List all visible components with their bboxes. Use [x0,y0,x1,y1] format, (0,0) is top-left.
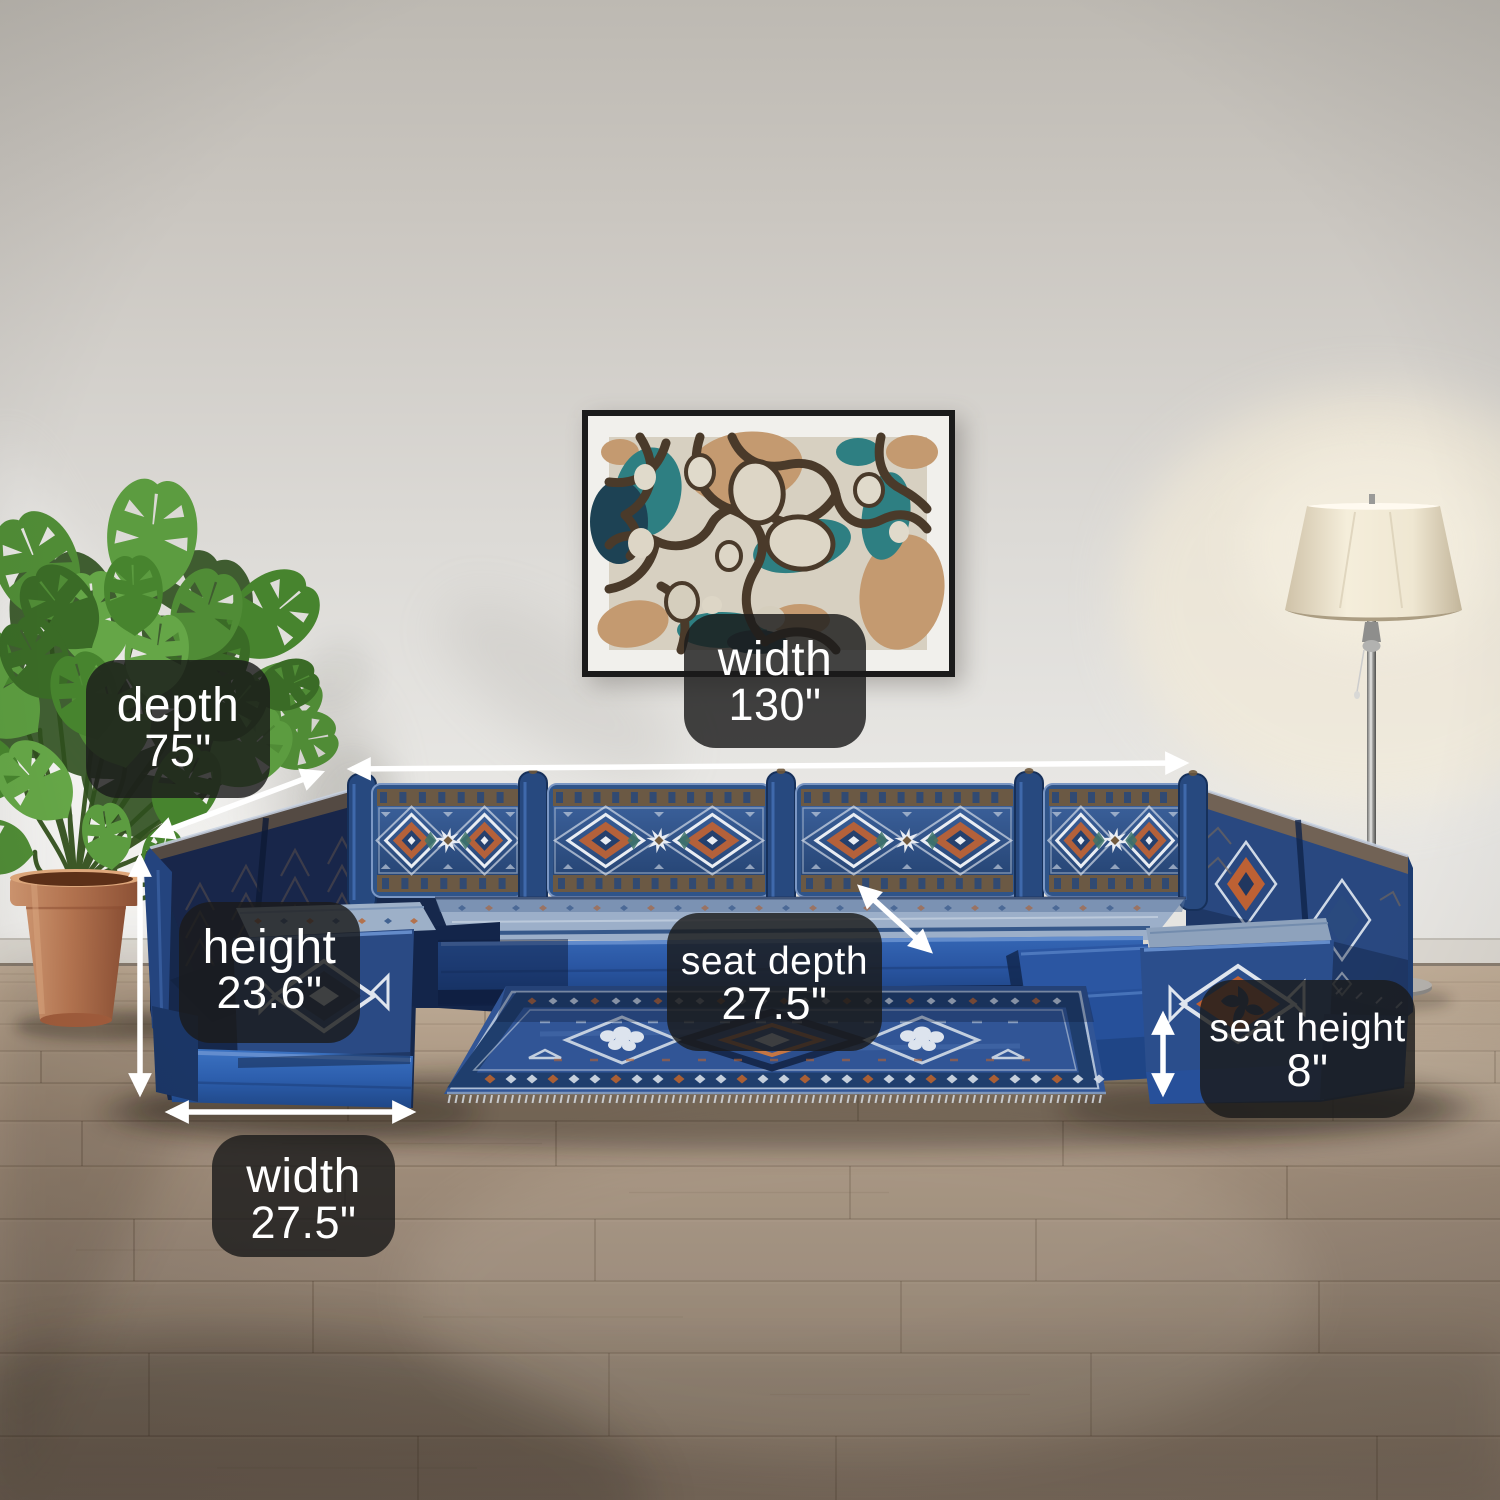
svg-text:seat height: seat height [1209,1007,1405,1050]
svg-text:8": 8" [1286,1045,1328,1096]
svg-text:23.6": 23.6" [216,967,322,1018]
svg-text:130": 130" [728,679,821,730]
svg-text:27.5": 27.5" [721,978,827,1029]
svg-text:75": 75" [144,725,212,776]
svg-text:27.5": 27.5" [250,1197,356,1248]
svg-text:width: width [245,1150,361,1203]
svg-text:seat depth: seat depth [681,940,868,983]
